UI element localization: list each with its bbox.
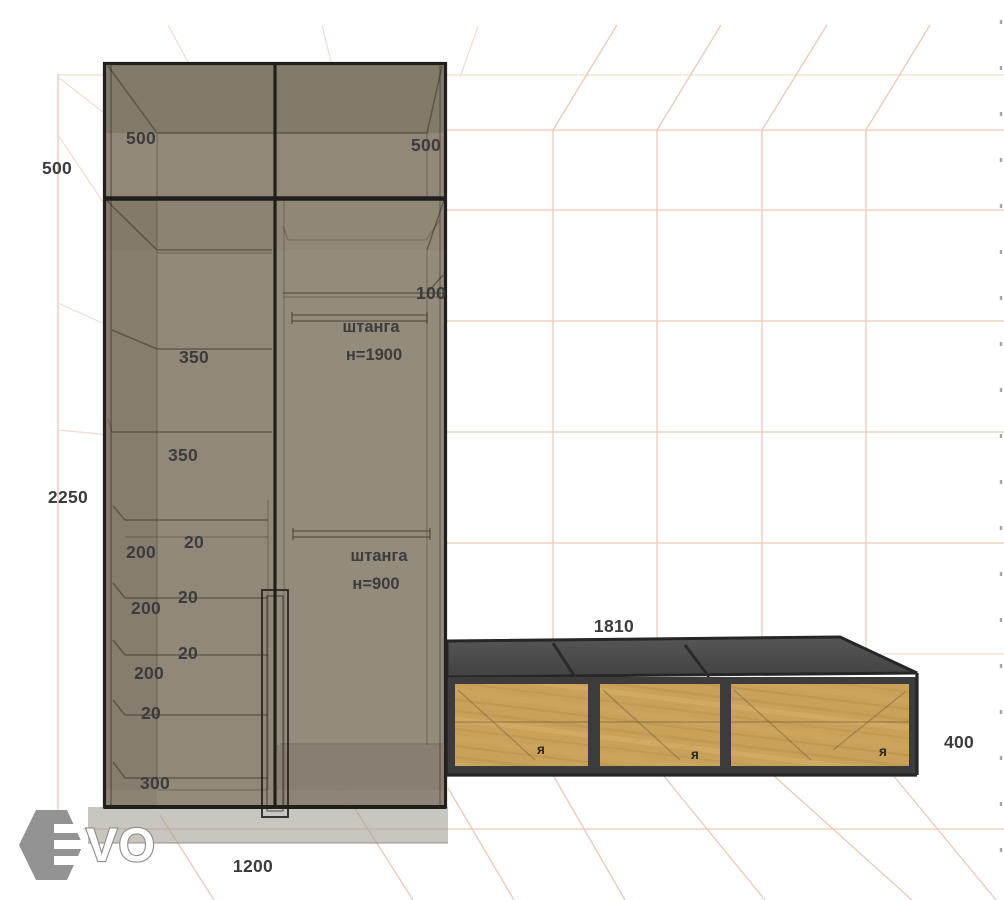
evo-logo-text: VO (86, 818, 156, 871)
3d-viewport[interactable]: 500 2250 500 500 100 штанга н=1900 350 3… (0, 0, 1004, 900)
drawer-mark-3: я (879, 744, 887, 759)
rod-upper-label: штанга (342, 318, 400, 336)
dim-bench-height: 400 (944, 732, 974, 752)
furniture-render: 500 2250 500 500 100 штанга н=1900 350 3… (0, 0, 1004, 900)
dim-cabinet-width: 1200 (233, 856, 273, 876)
bench (447, 637, 917, 775)
bench-top (447, 637, 917, 677)
bench-compartment-1 (455, 684, 588, 766)
rod-upper-height: н=1900 (346, 346, 402, 364)
dim-top-left-section: 500 (126, 128, 156, 148)
dim-drawer-2: 200 (131, 598, 161, 618)
dim-drawer-3: 200 (134, 663, 164, 683)
bench-compartment-2 (600, 684, 720, 766)
dim-cabinet-depth-top: 500 (42, 158, 72, 178)
dim-gap-4: 20 (141, 703, 161, 723)
wardrobe (88, 63, 448, 843)
rod-lower-height: н=900 (352, 575, 399, 593)
dim-bench-length: 1810 (594, 616, 634, 636)
dim-cabinet-height: 2250 (48, 487, 88, 507)
rod-lower-label: штанга (350, 547, 408, 565)
dim-drawer-1: 200 (126, 542, 156, 562)
dim-shelf-gap-lower: 350 (168, 445, 198, 465)
dim-top-shelf-gap: 100 (416, 283, 446, 303)
dim-gap-1: 20 (184, 532, 204, 552)
dim-bottom-section: 300 (140, 773, 170, 793)
dim-gap-2: 20 (178, 587, 198, 607)
evo-logo: VO (19, 810, 156, 880)
drawer-mark-2: я (691, 747, 699, 762)
drawer-mark-1: я (537, 742, 545, 757)
dim-shelf-gap-upper: 350 (179, 347, 209, 367)
dim-gap-3: 20 (178, 643, 198, 663)
dim-top-right-section: 500 (411, 135, 441, 155)
